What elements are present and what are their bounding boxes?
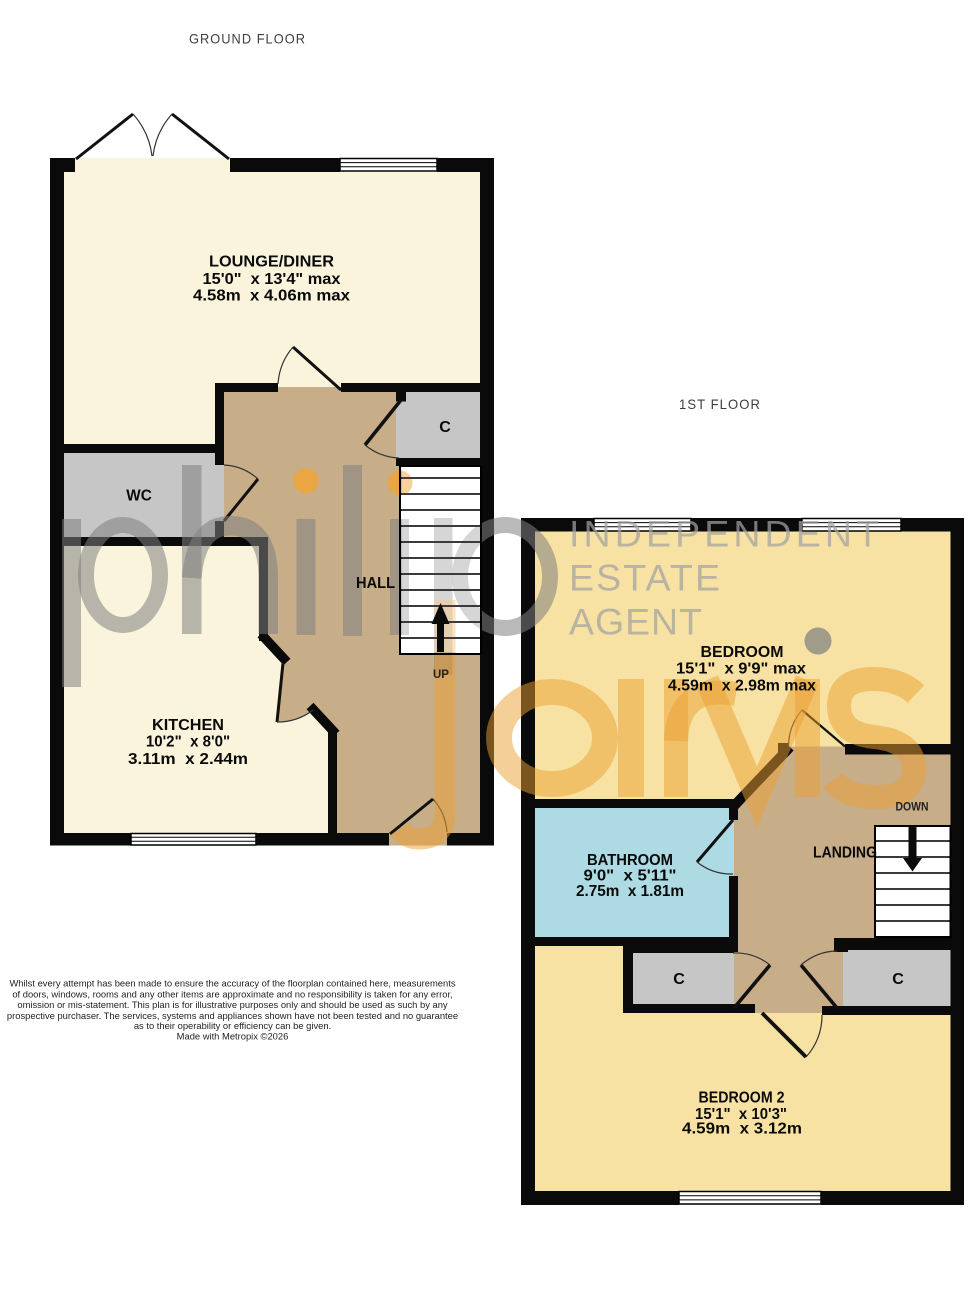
svg-text:Made with Metropix ©2026: Made with Metropix ©2026 [177, 1030, 289, 1041]
svg-text:BATHROOM: BATHROOM [587, 852, 673, 869]
svg-text:1ST FLOOR: 1ST FLOOR [679, 397, 761, 412]
svg-text:C: C [439, 419, 451, 436]
svg-text:LANDING: LANDING [813, 845, 877, 862]
svg-text:C: C [673, 971, 685, 988]
svg-text:WC: WC [126, 488, 152, 505]
svg-text:BEDROOM 2: BEDROOM 2 [699, 1090, 785, 1107]
svg-text:9'0" x 5'11": 9'0" x 5'11" [584, 868, 677, 885]
svg-text:4.59m x 2.98m max: 4.59m x 2.98m max [668, 678, 816, 695]
svg-text:of doors, windows, rooms and a: of doors, windows, rooms and any other i… [12, 988, 452, 999]
svg-text:LOUNGE/DINER: LOUNGE/DINER [209, 254, 334, 271]
svg-text:KITCHEN: KITCHEN [152, 717, 224, 734]
svg-text:BEDROOM: BEDROOM [701, 644, 784, 661]
svg-text:10'2" x 8'0": 10'2" x 8'0" [146, 734, 230, 751]
svg-text:15'1" x 9'9" max: 15'1" x 9'9" max [676, 661, 806, 678]
svg-text:GROUND FLOOR: GROUND FLOOR [189, 32, 306, 47]
svg-text:C: C [892, 971, 904, 988]
svg-text:omission or mis-statement. Thi: omission or mis-statement. This plan is … [17, 999, 448, 1010]
svg-text:Whilst every attempt has been: Whilst every attempt has been made to en… [9, 978, 455, 989]
svg-text:AGENT: AGENT [569, 601, 702, 643]
svg-text:DOWN: DOWN [896, 802, 929, 814]
svg-text:2.75m x 1.81m: 2.75m x 1.81m [576, 883, 684, 900]
svg-text:HALL: HALL [356, 575, 395, 592]
svg-text:UP: UP [433, 669, 449, 681]
svg-text:3.11m x 2.44m: 3.11m x 2.44m [128, 751, 248, 768]
svg-text:4.58m x 4.06m max: 4.58m x 4.06m max [193, 288, 350, 305]
svg-text:INDEPENDENT: INDEPENDENT [569, 513, 879, 555]
svg-text:4.59m x 3.12m: 4.59m x 3.12m [682, 1121, 802, 1138]
svg-text:15'0" x 13'4" max: 15'0" x 13'4" max [203, 271, 341, 288]
